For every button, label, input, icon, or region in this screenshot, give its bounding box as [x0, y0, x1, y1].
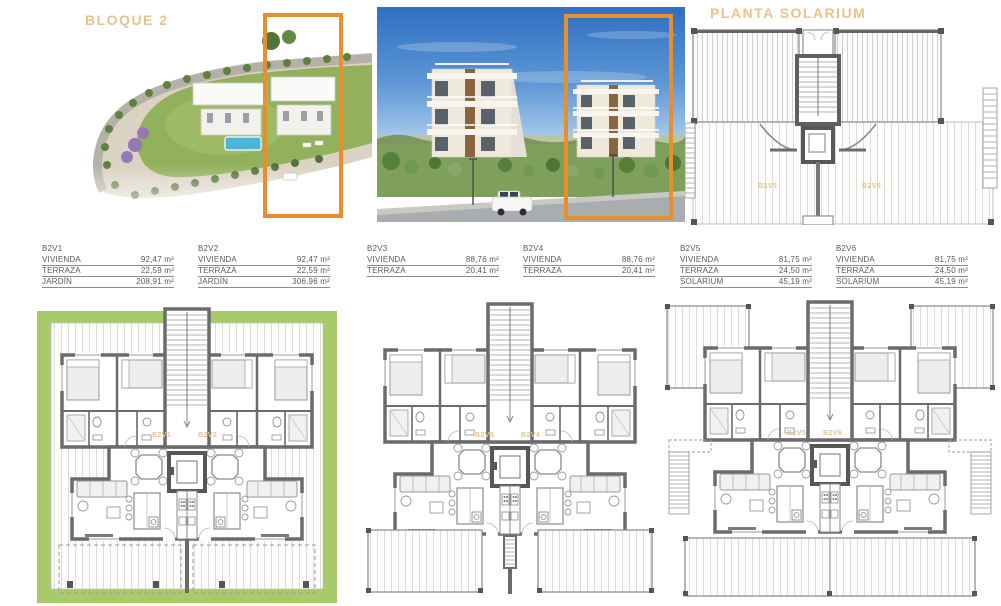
table-row: TERRAZA24,50 m²	[680, 266, 812, 277]
plan-unit-label-right: B2V4	[521, 432, 540, 439]
floor-plan-top: B2V5 B2V6	[665, 300, 995, 606]
table-row: SOLARIUM45,19 m²	[680, 277, 812, 288]
unit-table-b2v6: B2V6 VIVIENDA81,75 m² TERRAZA24,50 m² SO…	[836, 243, 968, 288]
solarium-unit-label-left: B2V5	[758, 183, 777, 190]
table-row: JARDÍN306,96 m²	[198, 277, 330, 288]
unit-id: B2V4	[523, 243, 655, 254]
pool	[225, 137, 261, 150]
plan-unit-label-left: B2V5	[787, 430, 806, 437]
unit-id: B2V6	[836, 243, 968, 254]
plan-unit-label-left: B2V3	[475, 432, 494, 439]
table-row: TERRAZA22,59 m²	[198, 266, 330, 277]
plan-unit-label-right: B2V2	[198, 432, 217, 439]
unit-id: B2V2	[198, 243, 330, 254]
solarium-plan-title: PLANTA SOLARIUM	[710, 5, 866, 21]
plan-unit-label-left: B2V1	[152, 432, 171, 439]
floor-plan-ground: B2V1 B2V2	[37, 307, 337, 606]
unit-id: B2V5	[680, 243, 812, 254]
table-row: VIVIENDA81,75 m²	[680, 255, 812, 266]
plan-unit-label-right: B2V6	[823, 430, 842, 437]
unit-id: B2V3	[367, 243, 499, 254]
table-row: TERRAZA24,50 m²	[836, 266, 968, 277]
highlight-box-street	[564, 14, 673, 220]
unit-table-b2v1: B2V1 VIVIENDA92,47 m² TERRAZA22,59 m² JA…	[42, 243, 174, 288]
table-row: VIVIENDA81,75 m²	[836, 255, 968, 266]
table-row: SOLARIUM45,19 m²	[836, 277, 968, 288]
table-row: VIVIENDA88,76 m²	[523, 255, 655, 266]
unit-table-b2v5: B2V5 VIVIENDA81,75 m² TERRAZA24,50 m² SO…	[680, 243, 812, 288]
unit-id: B2V1	[42, 243, 174, 254]
solarium-unit-label-right: B2V6	[862, 183, 881, 190]
unit-table-b2v4: B2V4 VIVIENDA88,76 m² TERRAZA20,41 m²	[523, 243, 655, 277]
table-row: TERRAZA22,59 m²	[42, 266, 174, 277]
building-cluster-left	[193, 83, 267, 135]
plan-sheet: BLOQUE 2	[0, 0, 1001, 606]
floor-plan-first: B2V3 B2V4	[360, 302, 660, 606]
solarium-floor-plan: B2V5 B2V6	[685, 28, 1000, 225]
table-row: VIVIENDA92,47 m²	[42, 255, 174, 266]
highlight-box-aerial	[263, 13, 343, 218]
table-row: JARDÍN208,91 m²	[42, 277, 174, 288]
table-row: VIVIENDA92,47 m²	[198, 255, 330, 266]
building-left	[427, 64, 527, 157]
table-row: TERRAZA20,41 m²	[367, 266, 499, 277]
unit-table-b2v2: B2V2 VIVIENDA92,47 m² TERRAZA22,59 m² JA…	[198, 243, 330, 288]
unit-table-b2v3: B2V3 VIVIENDA88,76 m² TERRAZA20,41 m²	[367, 243, 499, 277]
table-row: TERRAZA20,41 m²	[523, 266, 655, 277]
table-row: VIVIENDA88,76 m²	[367, 255, 499, 266]
